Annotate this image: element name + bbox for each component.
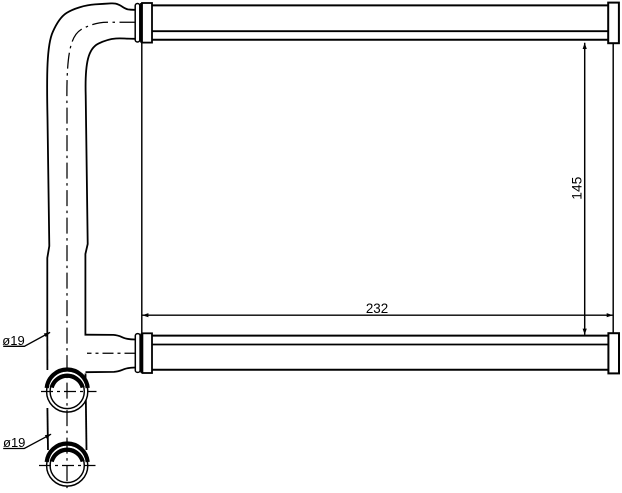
svg-text:145: 145 xyxy=(569,176,584,199)
svg-text:232: 232 xyxy=(366,301,388,316)
